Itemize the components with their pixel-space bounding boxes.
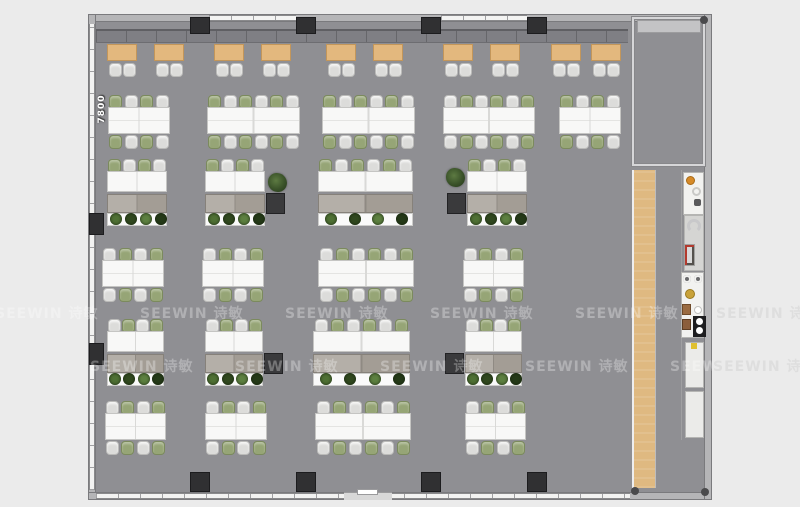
- desk-cluster: [443, 107, 535, 134]
- column: [421, 17, 441, 34]
- planter-plant: [125, 213, 137, 225]
- desk-cluster: [322, 107, 415, 134]
- planter-plant: [349, 213, 361, 225]
- chair: [385, 135, 398, 149]
- planter-box: [107, 373, 164, 386]
- chair: [317, 441, 330, 455]
- speaker-icon: [694, 199, 701, 206]
- chair: [593, 63, 606, 77]
- dark-cabinet: [266, 193, 285, 214]
- chair: [495, 288, 508, 302]
- column: [89, 343, 104, 365]
- cabinet-run: [467, 194, 527, 213]
- cabinet-run: [465, 354, 522, 373]
- planter-plant: [109, 373, 121, 385]
- chair: [560, 135, 573, 149]
- desk-cluster: [315, 413, 411, 440]
- booth-table: [154, 44, 184, 61]
- planter-plant: [485, 213, 497, 225]
- chair: [320, 288, 333, 302]
- sink-icon: [692, 187, 701, 196]
- planter-plant: [140, 213, 152, 225]
- chair: [368, 288, 381, 302]
- chair: [230, 63, 243, 77]
- chair: [255, 135, 268, 149]
- chair: [506, 135, 519, 149]
- desk-cluster: [205, 413, 267, 440]
- chair: [170, 63, 183, 77]
- chair: [492, 63, 505, 77]
- chair: [490, 135, 503, 149]
- planter-box: [205, 213, 265, 226]
- chair: [140, 135, 153, 149]
- cabinet-run: [107, 194, 167, 213]
- chair: [328, 63, 341, 77]
- chair: [479, 288, 492, 302]
- chair: [375, 63, 388, 77]
- desk-cluster: [465, 413, 526, 440]
- column: [296, 17, 316, 34]
- bench-desk: [205, 171, 265, 192]
- wall-junction-dot: [700, 16, 708, 24]
- planter-plant: [253, 213, 265, 225]
- chair: [464, 288, 477, 302]
- desk-cluster: [318, 260, 414, 287]
- chair: [134, 288, 147, 302]
- chair: [466, 441, 479, 455]
- column: [296, 472, 316, 492]
- chair: [222, 441, 235, 455]
- chair: [475, 135, 488, 149]
- planter-plant: [344, 373, 356, 385]
- chair: [253, 441, 266, 455]
- chair: [333, 441, 346, 455]
- chair: [203, 288, 216, 302]
- chair: [237, 441, 250, 455]
- column: [527, 17, 547, 34]
- chair: [323, 135, 336, 149]
- column: [190, 17, 210, 34]
- bench-desk: [107, 171, 167, 192]
- chair: [234, 288, 247, 302]
- booth-table: [261, 44, 291, 61]
- chair: [121, 441, 134, 455]
- chair: [510, 288, 523, 302]
- chair: [152, 441, 165, 455]
- fan-icon: [683, 275, 691, 283]
- potted-plant: [268, 173, 287, 192]
- planter-plant: [496, 373, 508, 385]
- planter-box: [107, 213, 167, 226]
- chair: [125, 135, 138, 149]
- chair: [150, 288, 163, 302]
- stove-icon: [693, 316, 706, 337]
- booth-table: [490, 44, 520, 61]
- basin-icon: [687, 219, 701, 233]
- chair: [576, 135, 589, 149]
- chair: [206, 441, 219, 455]
- chair: [354, 135, 367, 149]
- chair: [339, 135, 352, 149]
- planter-plant: [208, 213, 220, 225]
- cabinet-run: [107, 354, 164, 373]
- dark-cabinet: [264, 353, 283, 374]
- chair: [553, 63, 566, 77]
- chair: [481, 441, 494, 455]
- chair: [506, 63, 519, 77]
- planter-plant: [372, 213, 384, 225]
- chair: [224, 135, 237, 149]
- chair: [208, 135, 221, 149]
- chair: [389, 63, 402, 77]
- planter-box: [205, 373, 263, 386]
- planter-plant: [515, 213, 527, 225]
- pantry-counter: [685, 391, 704, 438]
- chair: [521, 135, 534, 149]
- fan-icon: [694, 275, 702, 283]
- banquette-bench: [96, 29, 628, 43]
- chair: [591, 135, 604, 149]
- planter-plant: [110, 213, 122, 225]
- warning-icon: [691, 343, 697, 349]
- planter-plant: [123, 373, 135, 385]
- chair: [352, 288, 365, 302]
- stove-burner: [696, 318, 703, 325]
- chair: [109, 63, 122, 77]
- chair: [286, 135, 299, 149]
- chair: [270, 135, 283, 149]
- planter-plant: [223, 213, 235, 225]
- chair: [123, 63, 136, 77]
- chair: [444, 135, 457, 149]
- chair: [342, 63, 355, 77]
- column: [89, 213, 104, 235]
- column: [421, 472, 441, 492]
- chair: [459, 63, 472, 77]
- chair: [370, 135, 383, 149]
- column: [190, 472, 210, 492]
- chair: [567, 63, 580, 77]
- planter-plant: [500, 213, 512, 225]
- desk-cluster: [207, 107, 300, 134]
- planter-plant: [251, 373, 263, 385]
- watermark-text: SEEWIN 诗敏: [713, 356, 800, 376]
- booth-table: [107, 44, 137, 61]
- planter-box: [465, 373, 522, 386]
- planter-plant: [325, 213, 337, 225]
- planter-plant: [207, 373, 219, 385]
- toaster-icon: [682, 319, 691, 330]
- chair: [137, 441, 150, 455]
- desk-cluster: [108, 107, 170, 134]
- booth-table: [551, 44, 581, 61]
- chair: [381, 441, 394, 455]
- chair: [512, 441, 525, 455]
- chair: [109, 135, 122, 149]
- planter-plant: [369, 373, 381, 385]
- chair: [365, 441, 378, 455]
- wall-junction-dot: [631, 487, 639, 495]
- planter-plant: [152, 373, 164, 385]
- booth-table: [214, 44, 244, 61]
- planter-plant: [470, 213, 482, 225]
- bench-desk: [107, 331, 164, 352]
- planter-plant: [393, 373, 405, 385]
- planter-plant: [236, 373, 248, 385]
- chair: [349, 441, 362, 455]
- column: [527, 472, 547, 492]
- hob-icon: [686, 176, 695, 185]
- cabinet-run: [313, 354, 410, 373]
- chair: [250, 288, 263, 302]
- desk-cluster: [105, 413, 166, 440]
- planter-plant: [238, 213, 250, 225]
- coffee-machine-icon: [682, 304, 691, 315]
- chair: [607, 135, 620, 149]
- booth-table: [443, 44, 473, 61]
- chair: [401, 135, 414, 149]
- planter-box: [313, 373, 410, 386]
- planter-plant: [155, 213, 167, 225]
- chair: [445, 63, 458, 77]
- cup-icon: [694, 306, 702, 314]
- chair: [156, 135, 169, 149]
- booth-table: [326, 44, 356, 61]
- planter-plant: [320, 373, 332, 385]
- appliance-icon: [684, 244, 695, 266]
- desk-cluster: [202, 260, 264, 287]
- floor-plan-canvas: 3800 3500 4200 3500 7800 SEEWIN 诗敏SEEWIN…: [0, 0, 800, 507]
- planter-plant: [138, 373, 150, 385]
- wall-junction-dot: [701, 488, 709, 496]
- booth-table: [591, 44, 621, 61]
- planter-plant: [510, 373, 522, 385]
- planter-box: [318, 213, 413, 226]
- desk-cluster: [102, 260, 164, 287]
- chair: [384, 288, 397, 302]
- cabinet-run: [318, 194, 413, 213]
- chair: [400, 288, 413, 302]
- bench-desk: [313, 331, 410, 352]
- planter-box: [467, 213, 527, 226]
- chair: [106, 441, 119, 455]
- planter-plant: [467, 373, 479, 385]
- chair: [119, 288, 132, 302]
- chair: [219, 288, 232, 302]
- chair: [263, 63, 276, 77]
- chair: [156, 63, 169, 77]
- desk-cluster: [463, 260, 524, 287]
- dark-cabinet: [445, 353, 464, 374]
- kettle-icon: [685, 289, 695, 299]
- chair: [216, 63, 229, 77]
- watermark-text: SEEWIN 诗敏: [716, 303, 800, 323]
- desk-cluster: [559, 107, 621, 134]
- cabinet-run: [205, 194, 265, 213]
- bench-desk: [467, 171, 527, 192]
- chair: [607, 63, 620, 77]
- chair: [103, 288, 116, 302]
- chair: [336, 288, 349, 302]
- chair: [239, 135, 252, 149]
- potted-plant: [446, 168, 465, 187]
- chair: [397, 441, 410, 455]
- stove-burner: [696, 327, 703, 334]
- cabinet-run: [205, 354, 263, 373]
- chair: [497, 441, 510, 455]
- dark-cabinet: [447, 193, 466, 214]
- chair: [277, 63, 290, 77]
- bench-desk: [205, 331, 263, 352]
- furniture-layer: [0, 0, 800, 507]
- planter-plant: [396, 213, 408, 225]
- chair: [460, 135, 473, 149]
- planter-plant: [222, 373, 234, 385]
- bench-desk: [465, 331, 522, 352]
- planter-plant: [481, 373, 493, 385]
- booth-table: [373, 44, 403, 61]
- bench-desk: [318, 171, 413, 192]
